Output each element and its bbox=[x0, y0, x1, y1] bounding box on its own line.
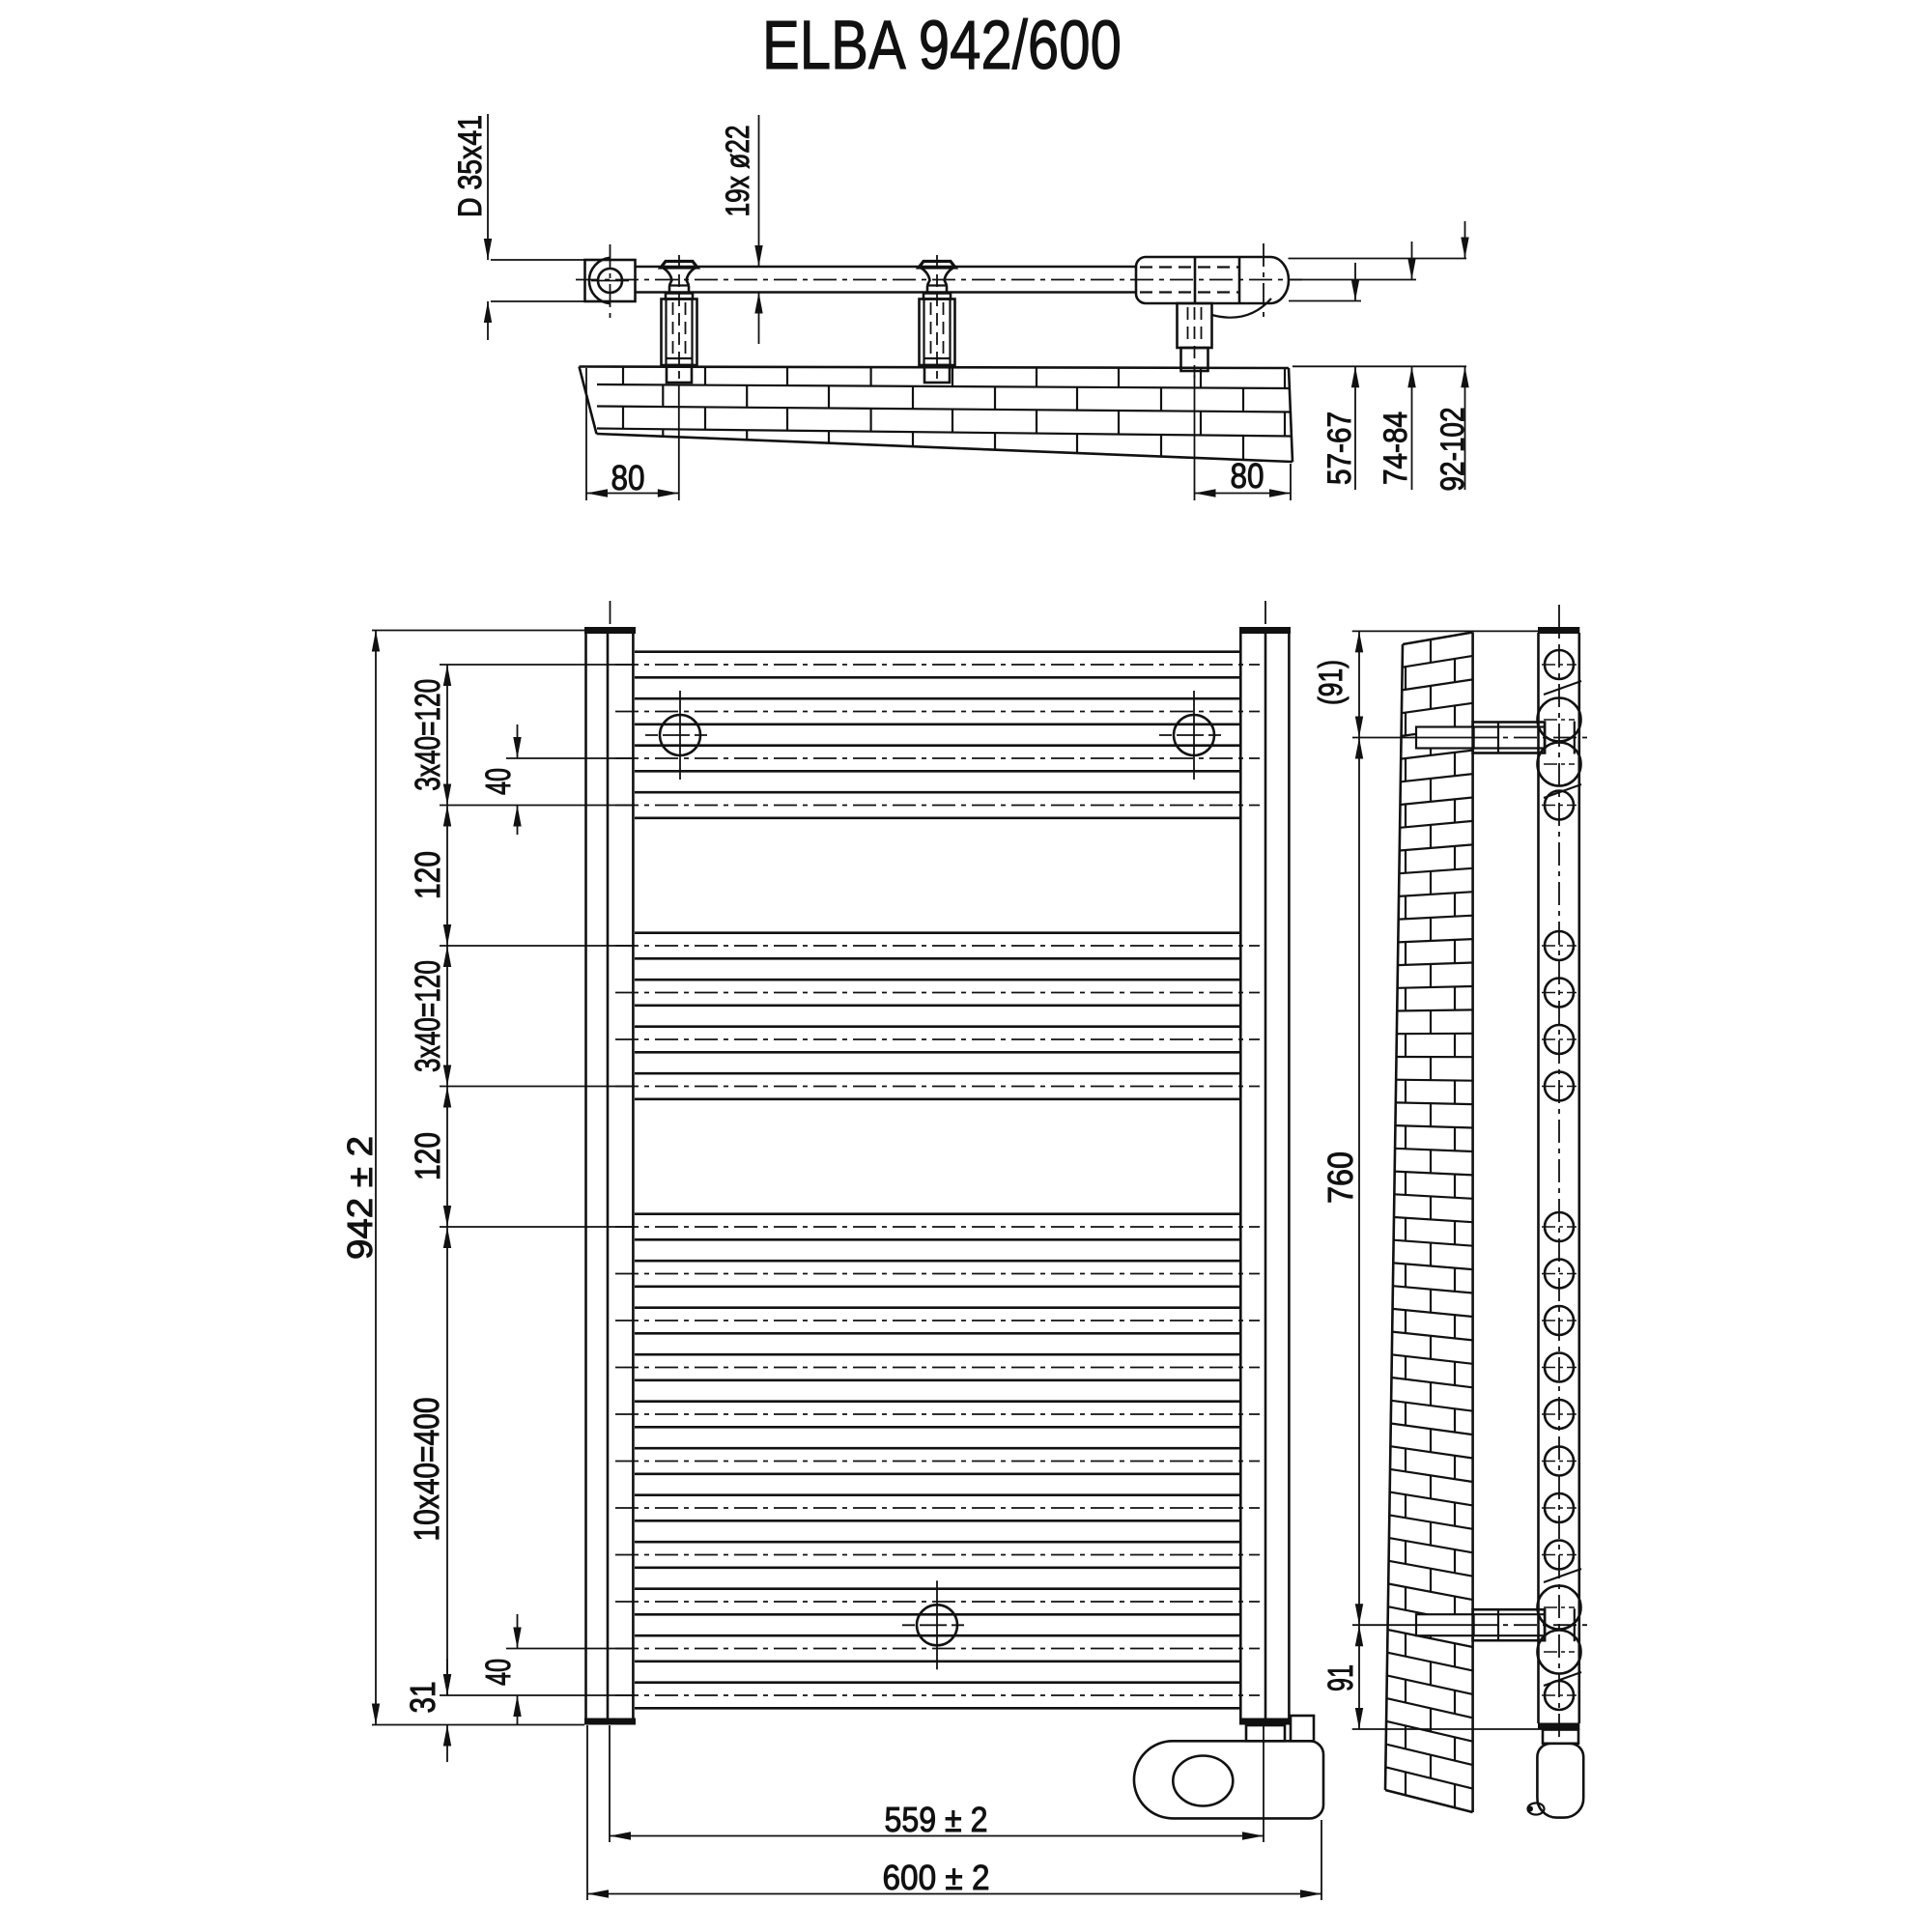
svg-text:(91): (91) bbox=[1313, 660, 1350, 705]
svg-text:19x ø22: 19x ø22 bbox=[720, 126, 756, 217]
svg-text:92-102: 92-102 bbox=[1435, 408, 1471, 492]
svg-text:559 ± 2: 559 ± 2 bbox=[885, 1800, 988, 1839]
svg-text:57-67: 57-67 bbox=[1321, 412, 1358, 485]
svg-text:91: 91 bbox=[1321, 1664, 1360, 1691]
svg-text:942 ± 2: 942 ± 2 bbox=[340, 1136, 380, 1260]
svg-text:80: 80 bbox=[1231, 456, 1264, 496]
svg-text:80: 80 bbox=[611, 458, 645, 497]
svg-text:31: 31 bbox=[403, 1682, 442, 1714]
svg-text:74-84: 74-84 bbox=[1378, 412, 1414, 485]
svg-text:ELBA 942/600: ELBA 942/600 bbox=[762, 8, 1122, 84]
svg-text:3x40=120: 3x40=120 bbox=[408, 960, 447, 1072]
svg-text:3x40=120: 3x40=120 bbox=[408, 679, 447, 791]
svg-text:10x40=400: 10x40=400 bbox=[407, 1398, 446, 1542]
svg-text:600 ± 2: 600 ± 2 bbox=[883, 1858, 990, 1897]
svg-text:40: 40 bbox=[478, 768, 518, 795]
svg-text:D 35x41: D 35x41 bbox=[452, 115, 489, 217]
svg-text:120: 120 bbox=[408, 1132, 447, 1180]
svg-text:40: 40 bbox=[478, 1659, 518, 1686]
svg-text:120: 120 bbox=[408, 851, 447, 899]
svg-text:760: 760 bbox=[1321, 1151, 1360, 1204]
